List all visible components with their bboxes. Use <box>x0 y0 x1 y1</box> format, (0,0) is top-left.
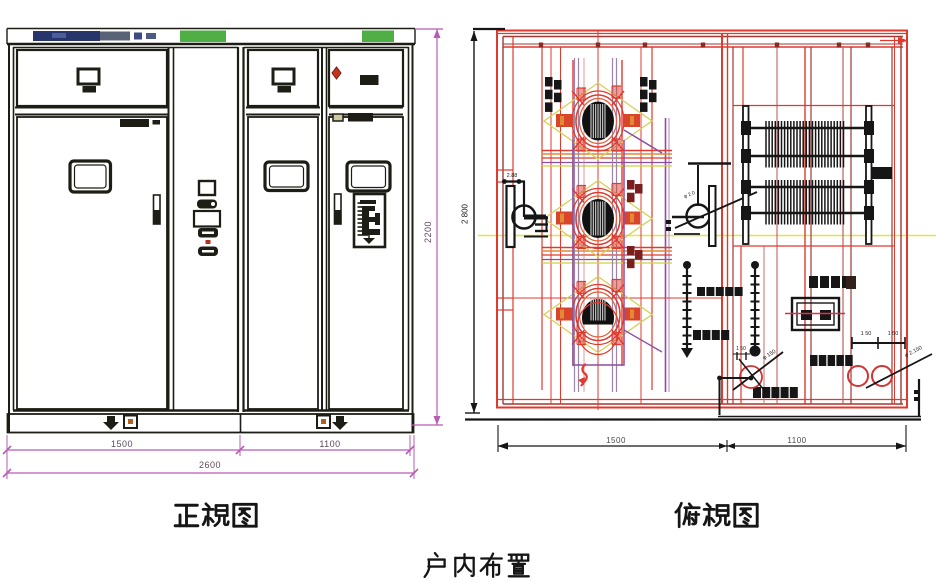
svg-text:1500: 1500 <box>606 436 626 445</box>
svg-text:1500: 1500 <box>111 439 133 449</box>
svg-text:2.88: 2.88 <box>507 173 518 179</box>
svg-text:2 800: 2 800 <box>461 203 470 224</box>
svg-text:1 50: 1 50 <box>888 331 899 337</box>
svg-text:2200: 2200 <box>423 221 433 243</box>
svg-text:1 50: 1 50 <box>861 331 872 337</box>
svg-text:1 50: 1 50 <box>736 346 746 352</box>
svg-text:1100: 1100 <box>787 436 806 445</box>
svg-text:2600: 2600 <box>199 460 221 470</box>
svg-text:1100: 1100 <box>319 439 340 449</box>
